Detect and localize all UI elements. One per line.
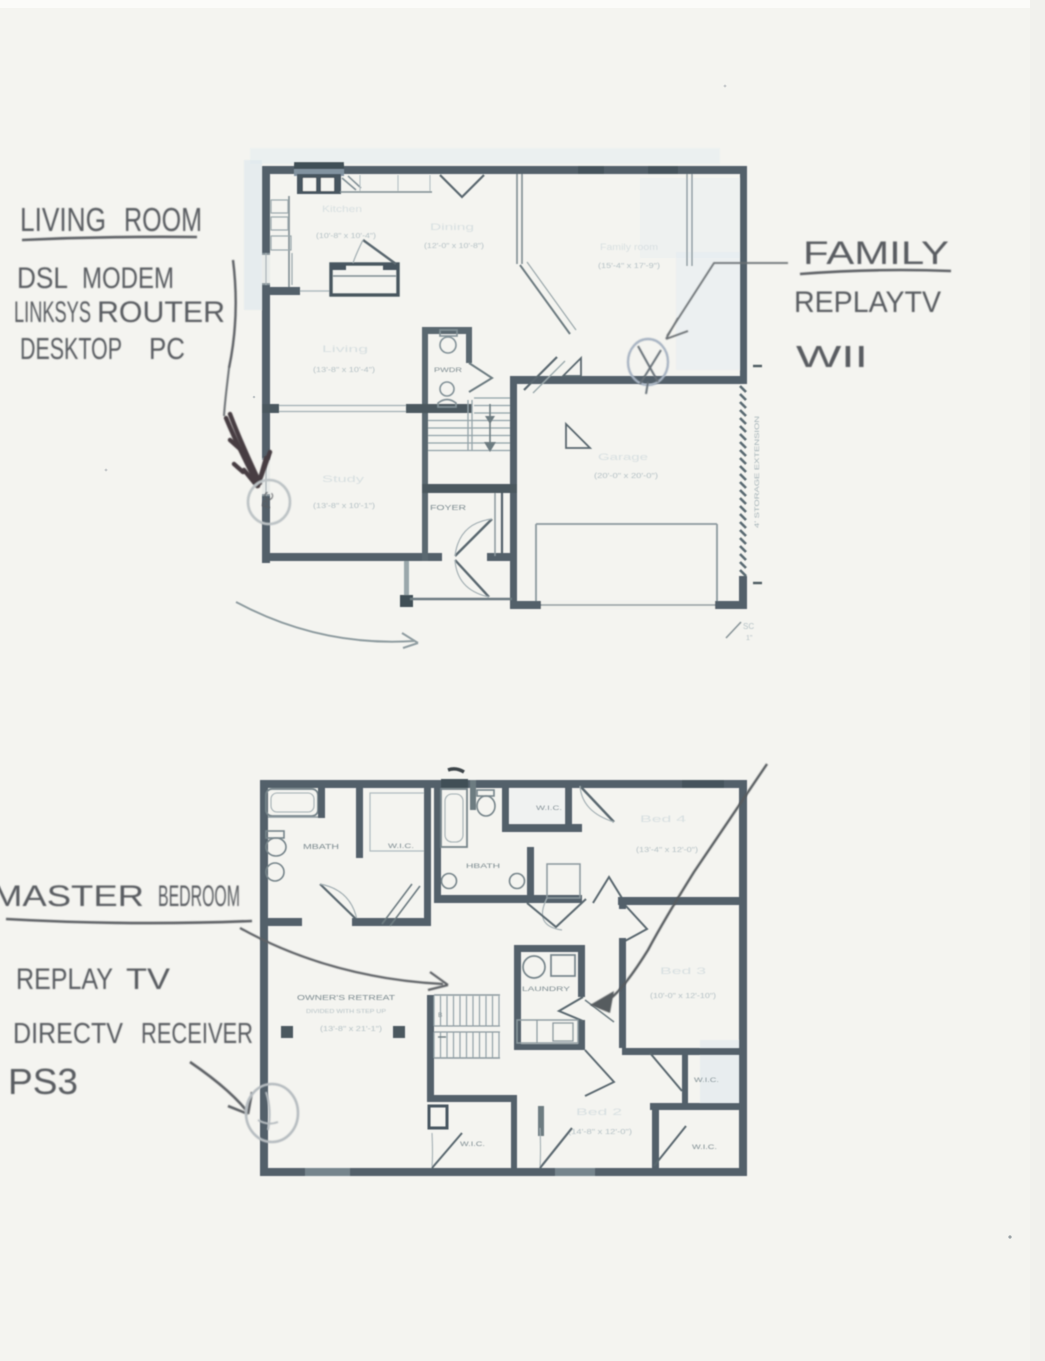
svg-text:FAMILY: FAMILY bbox=[803, 235, 949, 271]
svg-text:PC: PC bbox=[149, 331, 185, 366]
svg-text:(13'-4" x 12'-0"): (13'-4" x 12'-0") bbox=[636, 845, 698, 854]
svg-text:LINKSYS: LINKSYS bbox=[14, 296, 91, 329]
svg-text:W.I.C.: W.I.C. bbox=[692, 1144, 717, 1151]
svg-text:MODEM: MODEM bbox=[82, 262, 174, 295]
svg-text:BEDROOM: BEDROOM bbox=[158, 880, 240, 913]
svg-text:W.I.C.: W.I.C. bbox=[460, 1141, 485, 1148]
svg-text:HBATH: HBATH bbox=[466, 863, 500, 870]
svg-text:DESKTOP: DESKTOP bbox=[20, 331, 122, 366]
svg-text:DIRECTV: DIRECTV bbox=[13, 1018, 124, 1050]
svg-text:Bed 2: Bed 2 bbox=[576, 1107, 622, 1117]
svg-text:PS3: PS3 bbox=[8, 1061, 78, 1102]
svg-text:DSL: DSL bbox=[17, 262, 68, 295]
svg-text:(20'-0" x 20'-0"): (20'-0" x 20'-0") bbox=[594, 471, 658, 480]
svg-text:LIVING: LIVING bbox=[20, 201, 106, 238]
svg-text:W.I.C.: W.I.C. bbox=[388, 843, 414, 850]
svg-text:(12'-0" x 10'-8"): (12'-0" x 10'-8") bbox=[424, 241, 484, 250]
svg-text:W.I.C.: W.I.C. bbox=[536, 805, 562, 812]
svg-text:B: B bbox=[438, 1012, 442, 1019]
svg-text:OWNER'S RETREAT: OWNER'S RETREAT bbox=[297, 993, 395, 1002]
svg-text:Family room: Family room bbox=[600, 242, 658, 252]
svg-text:PWDR: PWDR bbox=[434, 367, 462, 374]
svg-text:SC: SC bbox=[743, 622, 754, 631]
svg-text:Living: Living bbox=[322, 344, 368, 354]
svg-text:WII: WII bbox=[796, 339, 868, 374]
svg-text:MBATH: MBATH bbox=[303, 842, 339, 851]
svg-text:Study: Study bbox=[322, 474, 365, 484]
svg-text:(14'-8" x 12'-0"): (14'-8" x 12'-0") bbox=[568, 1127, 632, 1136]
svg-text:Dining: Dining bbox=[430, 222, 474, 232]
svg-text:TV: TV bbox=[126, 963, 170, 996]
svg-text:ROUTER: ROUTER bbox=[97, 296, 225, 329]
svg-text:(10'-0" x 12'-10"): (10'-0" x 12'-10") bbox=[650, 991, 716, 1000]
svg-text:Garage: Garage bbox=[598, 452, 648, 462]
svg-text:(13'-8" x 21'-1"): (13'-8" x 21'-1") bbox=[320, 1024, 382, 1033]
svg-text:(13'-8" x 10'-1"): (13'-8" x 10'-1") bbox=[313, 501, 375, 510]
svg-text:LAUNDRY: LAUNDRY bbox=[522, 986, 571, 993]
svg-text:W.I.C.: W.I.C. bbox=[694, 1077, 719, 1084]
svg-text:RECEIVER: RECEIVER bbox=[141, 1018, 253, 1050]
svg-text:MASTER: MASTER bbox=[0, 880, 144, 913]
svg-text:DIVIDED WITH STEP UP: DIVIDED WITH STEP UP bbox=[306, 1009, 386, 1015]
svg-text:(15'-4" x 17'-9"): (15'-4" x 17'-9") bbox=[598, 261, 660, 270]
svg-text:REPLAY: REPLAY bbox=[16, 963, 113, 996]
svg-text:Kitchen: Kitchen bbox=[322, 204, 362, 214]
svg-text:Bed 4: Bed 4 bbox=[640, 814, 686, 824]
svg-text:(10'-8" x 10'-4"): (10'-8" x 10'-4") bbox=[316, 231, 376, 240]
svg-text:1": 1" bbox=[746, 635, 753, 642]
svg-text:Bed 3: Bed 3 bbox=[660, 966, 706, 976]
svg-text:FOYER: FOYER bbox=[430, 505, 466, 512]
svg-text:ROOM: ROOM bbox=[124, 201, 202, 238]
svg-text:REPLAYTV: REPLAYTV bbox=[794, 286, 941, 319]
svg-text:4' STORAGE EXTENSION: 4' STORAGE EXTENSION bbox=[754, 416, 761, 528]
svg-text:(13'-8" x 10'-4"): (13'-8" x 10'-4") bbox=[313, 365, 375, 374]
